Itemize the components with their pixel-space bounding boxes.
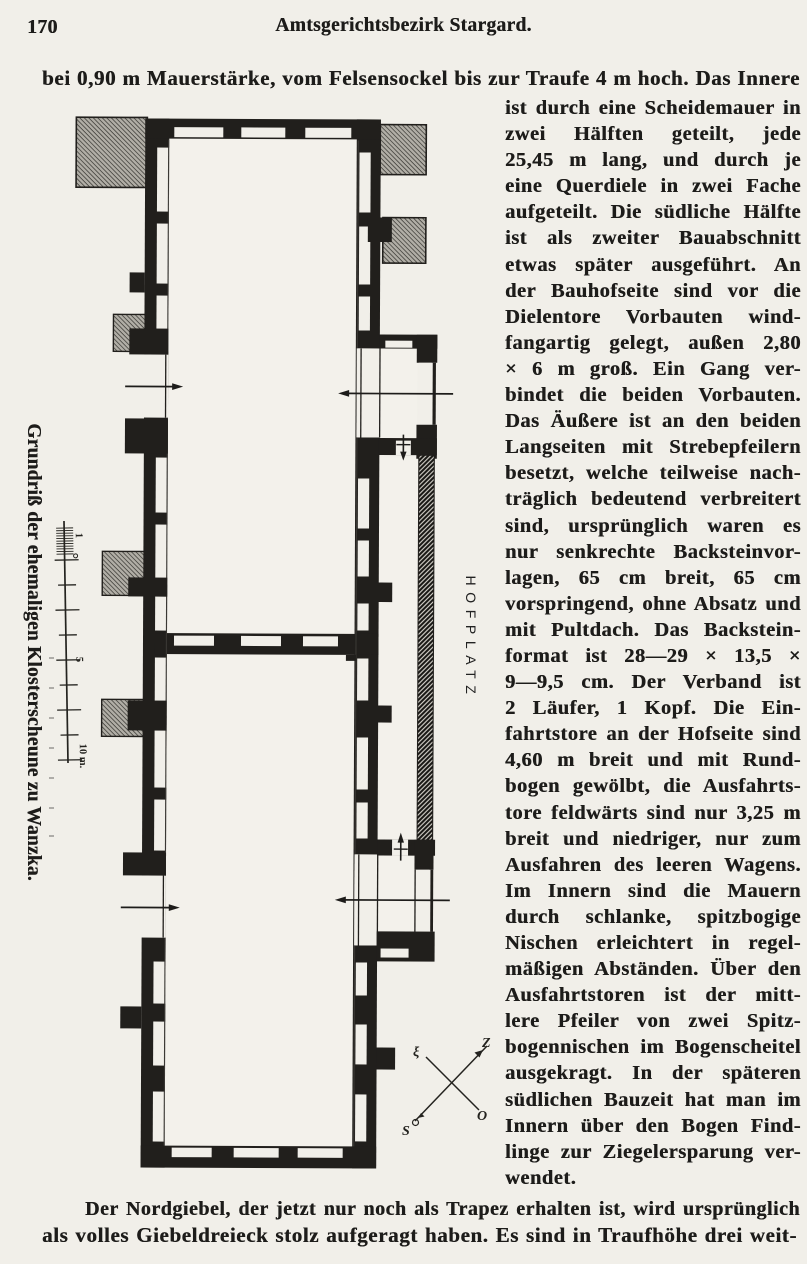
svg-text:S: S [402, 1124, 410, 1139]
svg-text:Z: Z [481, 1036, 491, 1051]
svg-text:10 m.: 10 m. [77, 744, 88, 769]
svg-text:5: 5 [73, 657, 84, 662]
svg-text:ξ: ξ [413, 1045, 420, 1060]
svg-text:1: 1 [73, 533, 84, 538]
svg-text:O: O [477, 1109, 487, 1124]
